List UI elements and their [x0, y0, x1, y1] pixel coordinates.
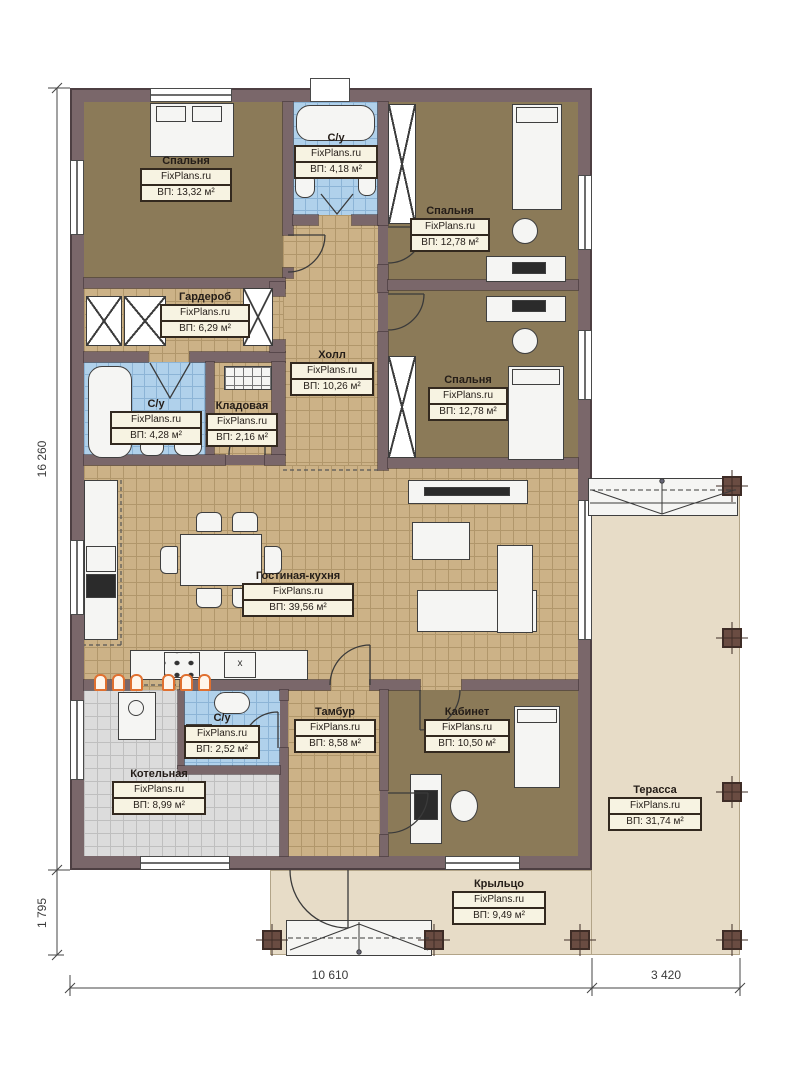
porch-steps — [286, 920, 432, 956]
brand-watermark: FixPlans.ru — [242, 583, 354, 601]
room-label-wardrobe: Гардероб FixPlans.ru ВП: 6,29 м² — [160, 291, 250, 338]
sink — [214, 692, 250, 714]
dimension-height-total: 16 260 — [35, 424, 49, 494]
terrace-floor — [578, 478, 740, 955]
wall — [190, 352, 285, 362]
floor-plan: x — [0, 0, 792, 1080]
room-area: ВП: 12,78 м² — [410, 236, 490, 252]
brand-watermark: FixPlans.ru — [428, 387, 508, 405]
room-label-storage: Кладовая FixPlans.ru ВП: 2,16 м² — [206, 400, 278, 447]
window — [578, 175, 592, 250]
room-name: Спальня — [428, 374, 508, 386]
room-name: С/у — [294, 132, 378, 144]
room-label-boiler: Котельная FixPlans.ru ВП: 8,99 м² — [112, 768, 206, 815]
brand-watermark: FixPlans.ru — [184, 725, 260, 743]
room-floor-hall — [283, 215, 378, 470]
room-name: Холл — [290, 349, 374, 361]
brand-watermark: FixPlans.ru — [452, 891, 546, 909]
window — [150, 88, 232, 102]
window — [445, 856, 520, 870]
column — [722, 628, 742, 648]
room-name: Терасса — [608, 784, 702, 796]
wall — [378, 265, 388, 292]
coffee-table — [412, 522, 470, 560]
room-area: ВП: 8,99 м² — [112, 799, 206, 815]
brand-watermark: FixPlans.ru — [608, 797, 702, 815]
wall — [280, 690, 288, 700]
room-area: ВП: 10,50 м² — [424, 737, 510, 753]
pillow — [512, 369, 560, 385]
boiler-dial — [128, 700, 144, 716]
pillow — [192, 106, 222, 122]
stove — [86, 574, 116, 598]
wall — [84, 278, 285, 288]
vent-block — [310, 78, 350, 102]
window — [70, 160, 84, 235]
room-area: ВП: 9,49 м² — [452, 909, 546, 925]
heating-symbol-icon — [198, 674, 211, 691]
room-label-bedroom-tr: Спальня FixPlans.ru ВП: 12,78 м² — [410, 205, 490, 252]
chair — [196, 588, 222, 608]
heating-symbol-icon — [94, 674, 107, 691]
sofa-chaise — [497, 545, 533, 633]
wall — [265, 455, 285, 465]
column — [262, 930, 282, 950]
pillow — [517, 709, 557, 723]
brand-watermark: FixPlans.ru — [294, 145, 378, 163]
office-chair — [450, 790, 478, 822]
room-name: Гостиная-кухня — [242, 570, 354, 582]
room-area: ВП: 13,32 м² — [140, 186, 232, 202]
room-label-tambour: Тамбур FixPlans.ru ВП: 8,58 м² — [294, 706, 376, 753]
brand-watermark: FixPlans.ru — [206, 413, 278, 431]
dimension-porch-depth: 1 795 — [35, 878, 49, 948]
chair — [232, 512, 258, 532]
wall — [462, 680, 578, 690]
room-label-bedroom-mr: Спальня FixPlans.ru ВП: 12,78 м² — [428, 374, 508, 421]
window — [70, 540, 84, 615]
wall — [293, 215, 318, 225]
room-name: С/у — [184, 712, 260, 724]
pillow — [516, 107, 558, 123]
room-name: Котельная — [112, 768, 206, 780]
heating-symbol-icon — [112, 674, 125, 691]
chair — [196, 512, 222, 532]
wall — [283, 268, 293, 278]
wall — [84, 352, 148, 362]
room-area: ВП: 31,74 м² — [608, 815, 702, 831]
heating-symbol-icon — [180, 674, 193, 691]
chair — [160, 546, 178, 574]
wall — [378, 332, 388, 470]
window — [578, 500, 592, 640]
closet — [86, 296, 122, 346]
room-area: ВП: 2,52 м² — [184, 743, 260, 759]
plant-pot — [512, 218, 538, 244]
room-name: Гардероб — [160, 291, 250, 303]
brand-watermark: FixPlans.ru — [294, 719, 376, 737]
wall — [380, 690, 388, 790]
dimension-width-house: 10 610 — [290, 968, 370, 982]
heating-symbol-icon — [162, 674, 175, 691]
dimension-width-terrace: 3 420 — [626, 968, 706, 982]
room-name: Кабинет — [424, 706, 510, 718]
heating-symbol-icon — [130, 674, 143, 691]
room-name: Спальня — [140, 155, 232, 167]
monitor — [414, 790, 438, 820]
tv — [424, 487, 510, 496]
room-area: ВП: 12,78 м² — [428, 405, 508, 421]
brand-watermark: FixPlans.ru — [140, 168, 232, 186]
room-label-living: Гостиная-кухня FixPlans.ru ВП: 39,56 м² — [242, 570, 354, 617]
wall — [283, 102, 293, 235]
wall — [370, 680, 420, 690]
room-name: Спальня — [410, 205, 490, 217]
shelving — [224, 366, 272, 390]
wall — [378, 102, 388, 225]
column — [424, 930, 444, 950]
room-area: ВП: 2,16 м² — [206, 431, 278, 447]
window — [578, 330, 592, 400]
room-area: ВП: 4,18 м² — [294, 163, 378, 179]
room-label-bath-left: С/у FixPlans.ru ВП: 4,28 м² — [110, 398, 202, 445]
column — [722, 930, 742, 950]
brand-watermark: FixPlans.ru — [112, 781, 206, 799]
room-label-bath-small: С/у FixPlans.ru ВП: 2,52 м² — [184, 712, 260, 759]
brand-watermark: FixPlans.ru — [410, 218, 490, 236]
brand-watermark: FixPlans.ru — [290, 362, 374, 380]
wardrobe-cabinet — [388, 356, 416, 458]
room-area: ВП: 10,26 м² — [290, 380, 374, 396]
room-name: С/у — [110, 398, 202, 410]
room-label-hall: Холл FixPlans.ru ВП: 10,26 м² — [290, 349, 374, 396]
brand-watermark: FixPlans.ru — [160, 304, 250, 322]
wall — [280, 748, 288, 856]
room-area: ВП: 39,56 м² — [242, 601, 354, 617]
room-label-office: Кабинет FixPlans.ru ВП: 10,50 м² — [424, 706, 510, 753]
wall — [352, 215, 378, 225]
room-name: Крыльцо — [452, 878, 546, 890]
window — [140, 856, 230, 870]
room-label-porch: Крыльцо FixPlans.ru ВП: 9,49 м² — [452, 878, 546, 925]
room-label-bath-top: С/у FixPlans.ru ВП: 4,18 м² — [294, 132, 378, 179]
plant-pot — [512, 328, 538, 354]
brand-watermark: FixPlans.ru — [110, 411, 202, 429]
room-area: ВП: 4,28 м² — [110, 429, 202, 445]
room-name: Кладовая — [206, 400, 278, 412]
column — [722, 476, 742, 496]
kitchen-counter — [130, 650, 308, 680]
wall — [380, 835, 388, 856]
room-label-terrace: Терасса FixPlans.ru ВП: 31,74 м² — [608, 784, 702, 831]
monitor — [512, 262, 546, 274]
monitor — [512, 300, 546, 312]
window — [70, 700, 84, 780]
room-area: ВП: 6,29 м² — [160, 322, 250, 338]
terrace-steps — [588, 478, 738, 516]
column — [570, 930, 590, 950]
kitchen-sink — [86, 546, 116, 572]
room-area: ВП: 8,58 м² — [294, 737, 376, 753]
appliance-label: x — [224, 658, 256, 669]
room-label-bedroom-tl: Спальня FixPlans.ru ВП: 13,32 м² — [140, 155, 232, 202]
column — [722, 782, 742, 802]
room-name: Тамбур — [294, 706, 376, 718]
pillow — [156, 106, 186, 122]
brand-watermark: FixPlans.ru — [424, 719, 510, 737]
